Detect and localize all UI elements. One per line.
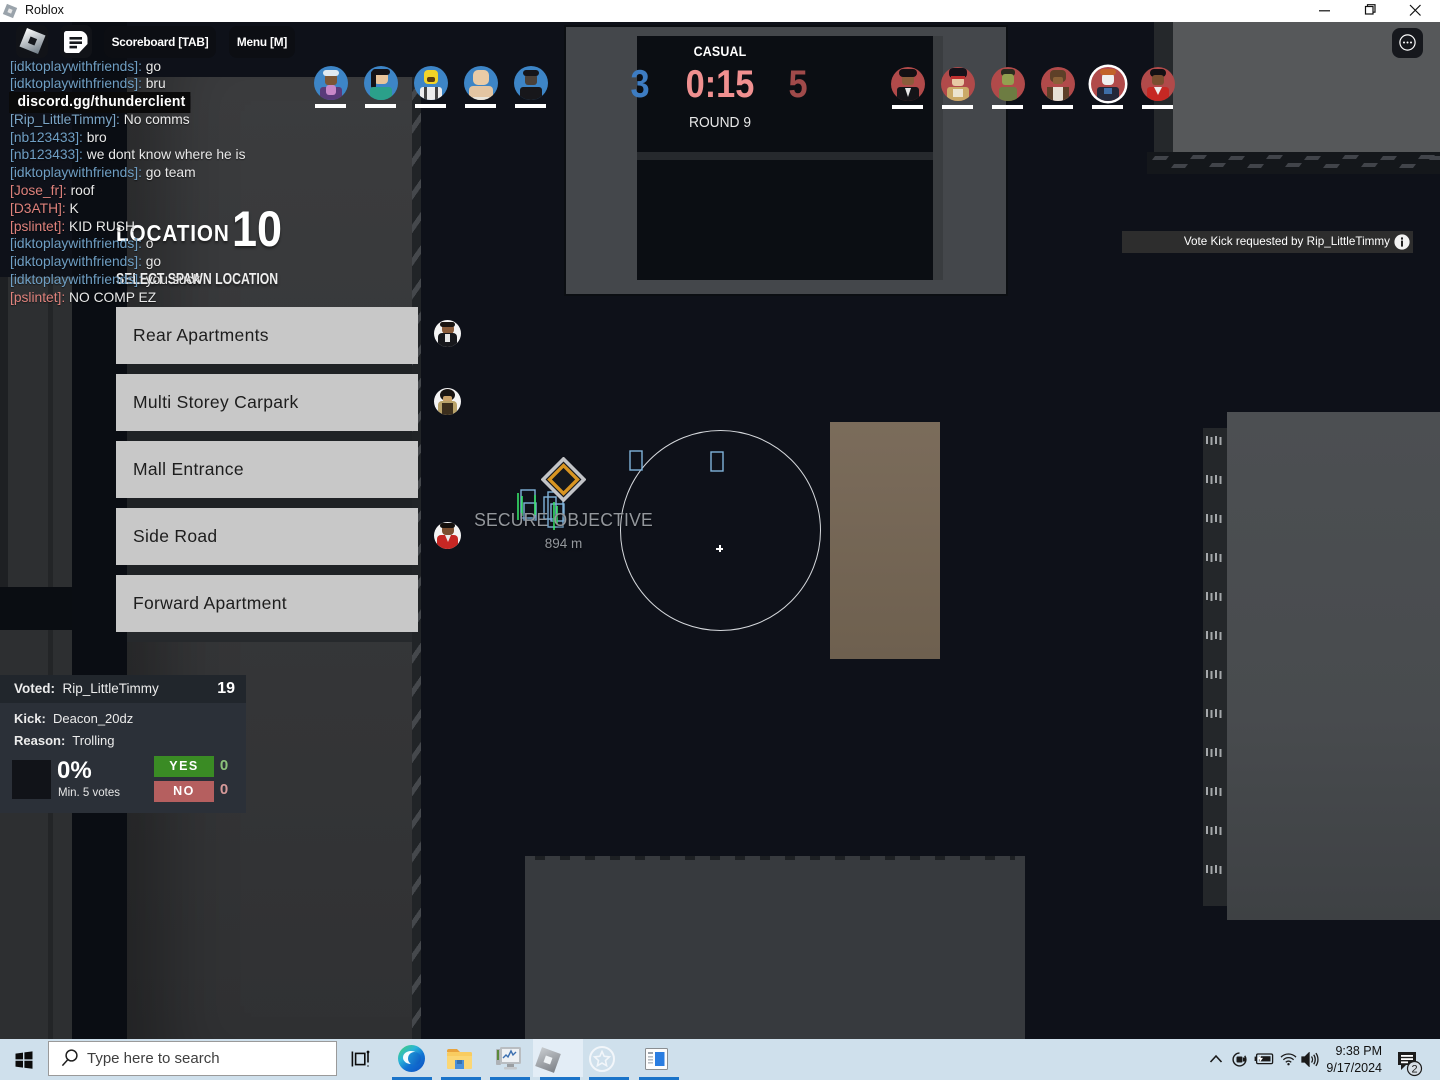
svg-text:2: 2	[1411, 1064, 1417, 1076]
